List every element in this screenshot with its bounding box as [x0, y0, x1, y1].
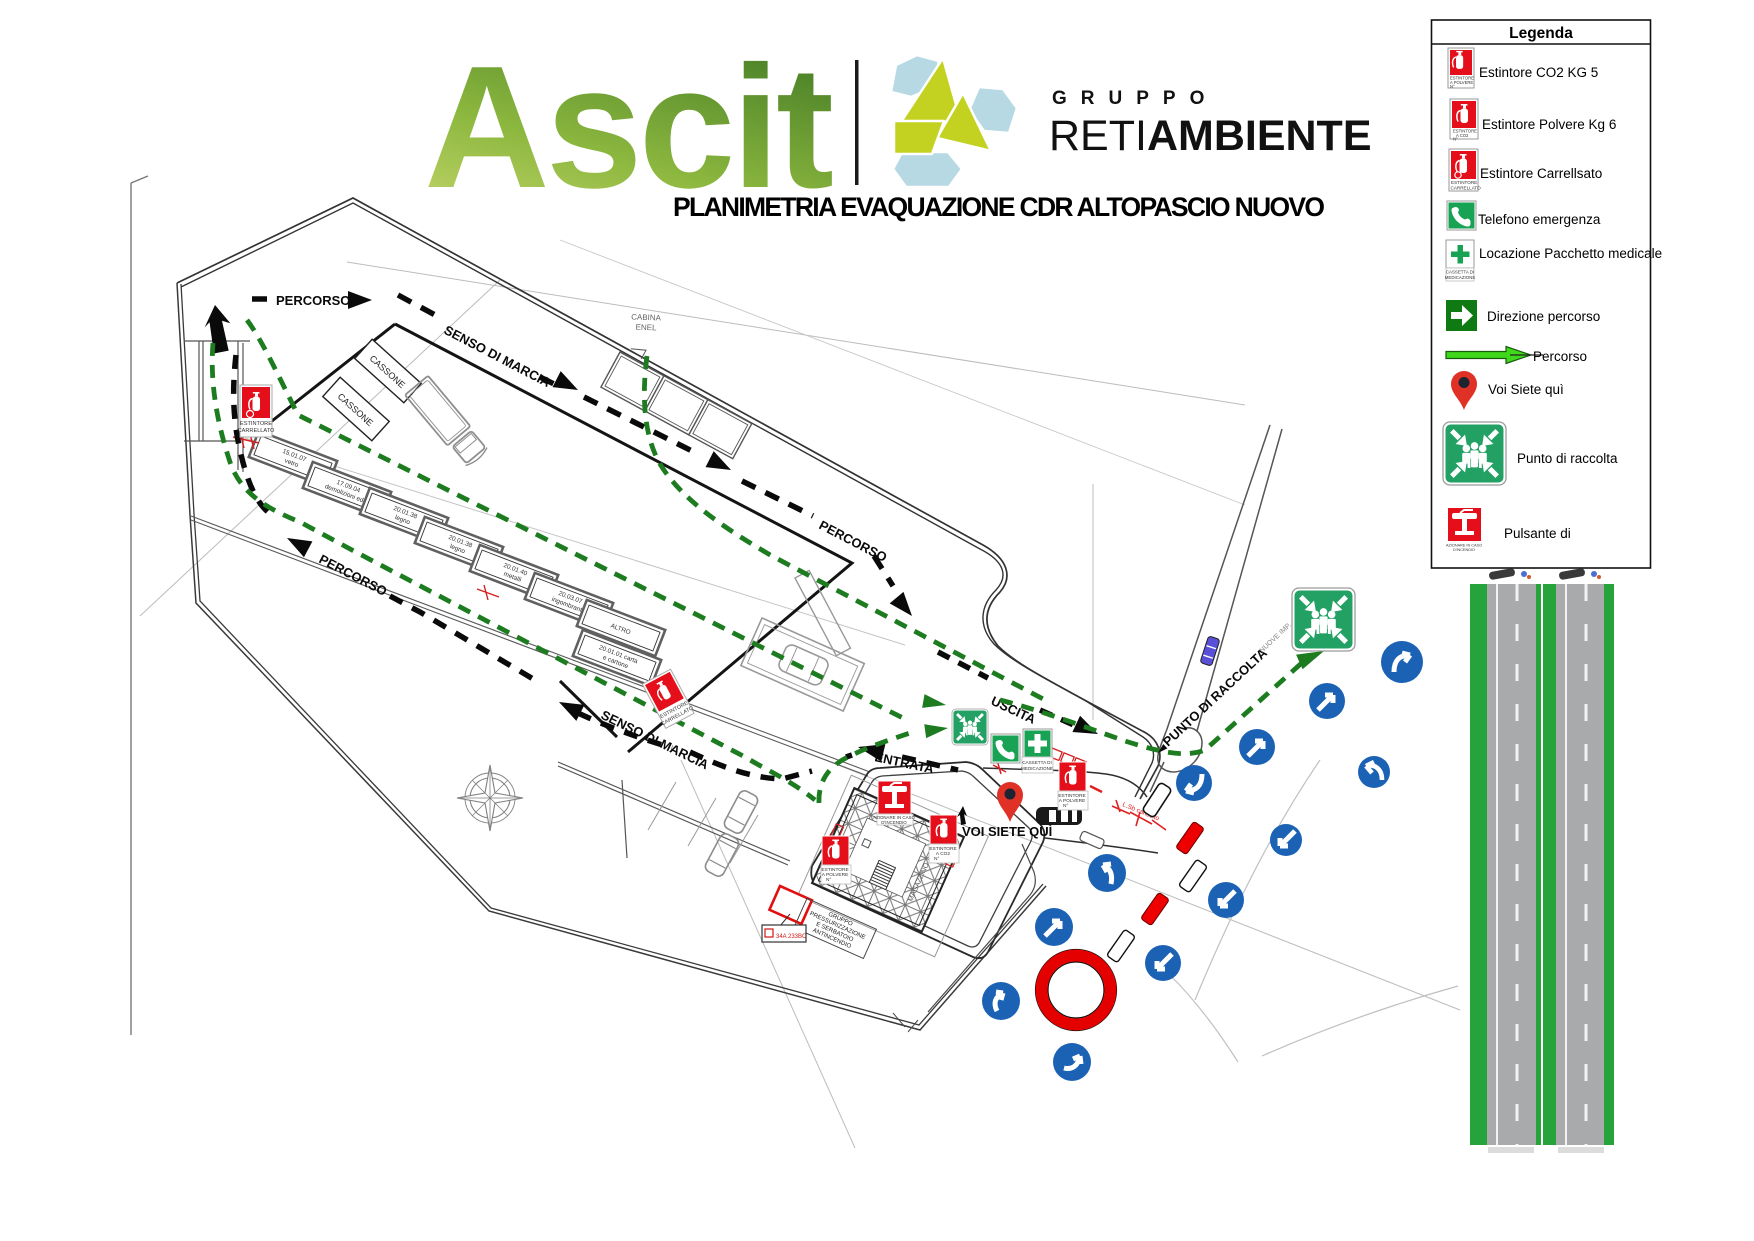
svg-text:PERCORSO: PERCORSO: [276, 293, 350, 308]
svg-text:CARRELLATO: CARRELLATO: [238, 428, 275, 434]
svg-text:N°: N°: [934, 856, 939, 862]
svg-text:Percorso: Percorso: [1533, 349, 1587, 364]
svg-text:Pulsante di: Pulsante di: [1504, 526, 1571, 541]
svg-text:ESTINTORE: ESTINTORE: [1451, 180, 1477, 185]
svg-text:CABINA: CABINA: [631, 312, 662, 322]
svg-text:Estintore CO2 KG 5: Estintore CO2 KG 5: [1479, 65, 1598, 80]
svg-text:Estintore Carrellsato: Estintore Carrellsato: [1480, 166, 1602, 181]
svg-text:ESTINTORE: ESTINTORE: [240, 421, 272, 427]
svg-text:RETIAMBIENTE: RETIAMBIENTE: [1049, 112, 1372, 160]
svg-text:MEDICAZIONE: MEDICAZIONE: [1021, 766, 1053, 771]
svg-text:Voi Siete quì: Voi Siete quì: [1488, 382, 1564, 397]
svg-text:N°: N°: [826, 877, 831, 883]
svg-text:N°: N°: [1063, 803, 1068, 809]
svg-text:Punto di raccolta: Punto di raccolta: [1517, 451, 1618, 466]
svg-text:AZIONARE IN CASO: AZIONARE IN CASO: [1446, 544, 1482, 548]
svg-text:GRUPPO: GRUPPO: [1052, 88, 1218, 109]
svg-text:D'INCENDIO: D'INCENDIO: [1453, 548, 1475, 552]
svg-text:Locazione Pacchetto medicale: Locazione Pacchetto medicale: [1479, 246, 1662, 261]
svg-text:D'INCENDIO: D'INCENDIO: [881, 820, 907, 825]
svg-text:Direzione percorso: Direzione percorso: [1487, 309, 1600, 324]
svg-text:Estintore Polvere Kg 6: Estintore Polvere Kg 6: [1482, 117, 1616, 132]
svg-text:CASSETTA DI: CASSETTA DI: [1446, 270, 1474, 275]
svg-text:N°: N°: [1450, 84, 1455, 89]
svg-text:MEDICAZIONE: MEDICAZIONE: [1445, 275, 1476, 280]
svg-text:CARRELLATO: CARRELLATO: [1451, 186, 1482, 191]
svg-text:34A 233BC: 34A 233BC: [776, 934, 807, 940]
svg-text:Telefono emergenza: Telefono emergenza: [1478, 212, 1601, 227]
svg-text:N°: N°: [1453, 137, 1458, 142]
svg-text:ENEL: ENEL: [635, 323, 657, 333]
svg-text:PLANIMETRIA EVAQUAZIONE CDR AL: PLANIMETRIA EVAQUAZIONE CDR ALTOPASCIO N…: [673, 192, 1325, 222]
svg-text:Legenda: Legenda: [1509, 25, 1573, 42]
svg-text:A CO2: A CO2: [1456, 133, 1469, 138]
svg-text:CASSETTA DI: CASSETTA DI: [1022, 760, 1052, 765]
svg-text:VOI SIETE QUÌ: VOI SIETE QUÌ: [962, 824, 1052, 839]
